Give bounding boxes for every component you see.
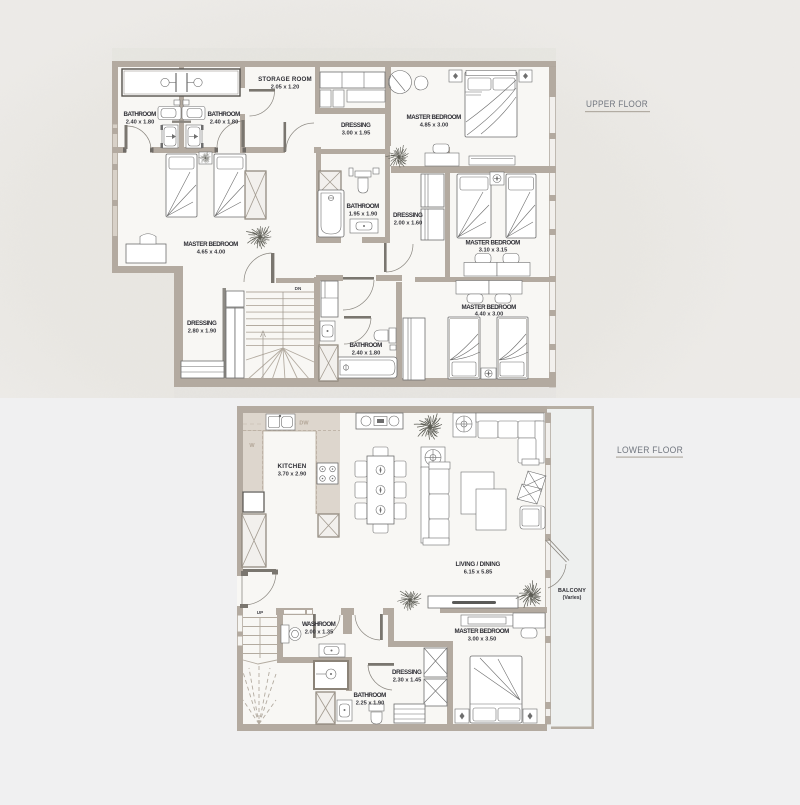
svg-text:BATHROOM: BATHROOM [354,692,387,699]
svg-text:MASTER BEDROOM: MASTER BEDROOM [455,628,510,635]
svg-text:(Varies): (Varies) [563,595,582,601]
svg-text:2.40 x 1.80: 2.40 x 1.80 [352,351,380,357]
svg-text:1.95 x 1.90: 1.95 x 1.90 [349,212,377,218]
svg-text:2.80 x 1.90: 2.80 x 1.90 [188,329,216,335]
svg-text:WASHROOM: WASHROOM [302,621,336,628]
svg-text:BATHROOM: BATHROOM [124,111,157,118]
svg-text:2.00 x 1.35: 2.00 x 1.35 [305,630,333,636]
svg-text:2.25 x 1.90: 2.25 x 1.90 [356,701,384,707]
svg-text:MASTER BEDROOM: MASTER BEDROOM [407,114,462,121]
svg-text:KITCHEN: KITCHEN [278,463,307,470]
svg-text:UPPER FLOOR: UPPER FLOOR [586,99,648,110]
svg-text:MASTER BEDROOM: MASTER BEDROOM [462,304,517,311]
svg-text:DRESSING: DRESSING [393,212,423,219]
svg-text:3.00 x 1.95: 3.00 x 1.95 [342,131,370,137]
svg-text:W: W [249,443,255,449]
svg-text:BATHROOM: BATHROOM [208,111,241,118]
svg-text:LIVING / DINING: LIVING / DINING [456,561,501,568]
svg-text:DRESSING: DRESSING [392,669,422,676]
svg-text:DRESSING: DRESSING [187,320,217,327]
svg-text:BATHROOM: BATHROOM [347,203,380,210]
svg-text:DRESSING: DRESSING [341,122,371,129]
svg-text:4.65 x 4.00: 4.65 x 4.00 [197,250,225,256]
svg-text:2.00 x 1.60: 2.00 x 1.60 [394,221,422,227]
svg-text:LOWER FLOOR: LOWER FLOOR [617,445,683,456]
svg-text:3.00 x 3.50: 3.00 x 3.50 [468,637,496,643]
svg-text:2.40 x 1.80: 2.40 x 1.80 [126,120,154,126]
svg-text:2.05 x 1.20: 2.05 x 1.20 [271,85,299,91]
svg-text:3.70 x 2.90: 3.70 x 2.90 [278,472,306,478]
svg-text:BALCONY: BALCONY [558,588,586,594]
svg-text:MASTER BEDROOM: MASTER BEDROOM [184,241,239,248]
svg-text:UP: UP [257,610,263,615]
svg-text:MASTER BEDROOM: MASTER BEDROOM [466,240,521,247]
svg-text:DN: DN [295,286,302,291]
svg-text:DW: DW [299,421,309,427]
svg-text:STORAGE ROOM: STORAGE ROOM [258,76,312,83]
svg-text:2.40 x 1.80: 2.40 x 1.80 [210,120,238,126]
svg-text:3.10 x 3.15: 3.10 x 3.15 [479,248,507,254]
svg-text:2.30 x 1.45: 2.30 x 1.45 [393,678,421,684]
svg-text:4.85 x 3.00: 4.85 x 3.00 [420,123,448,129]
svg-text:6.15 x 5.85: 6.15 x 5.85 [464,570,492,576]
svg-text:BATHROOM: BATHROOM [350,342,383,349]
